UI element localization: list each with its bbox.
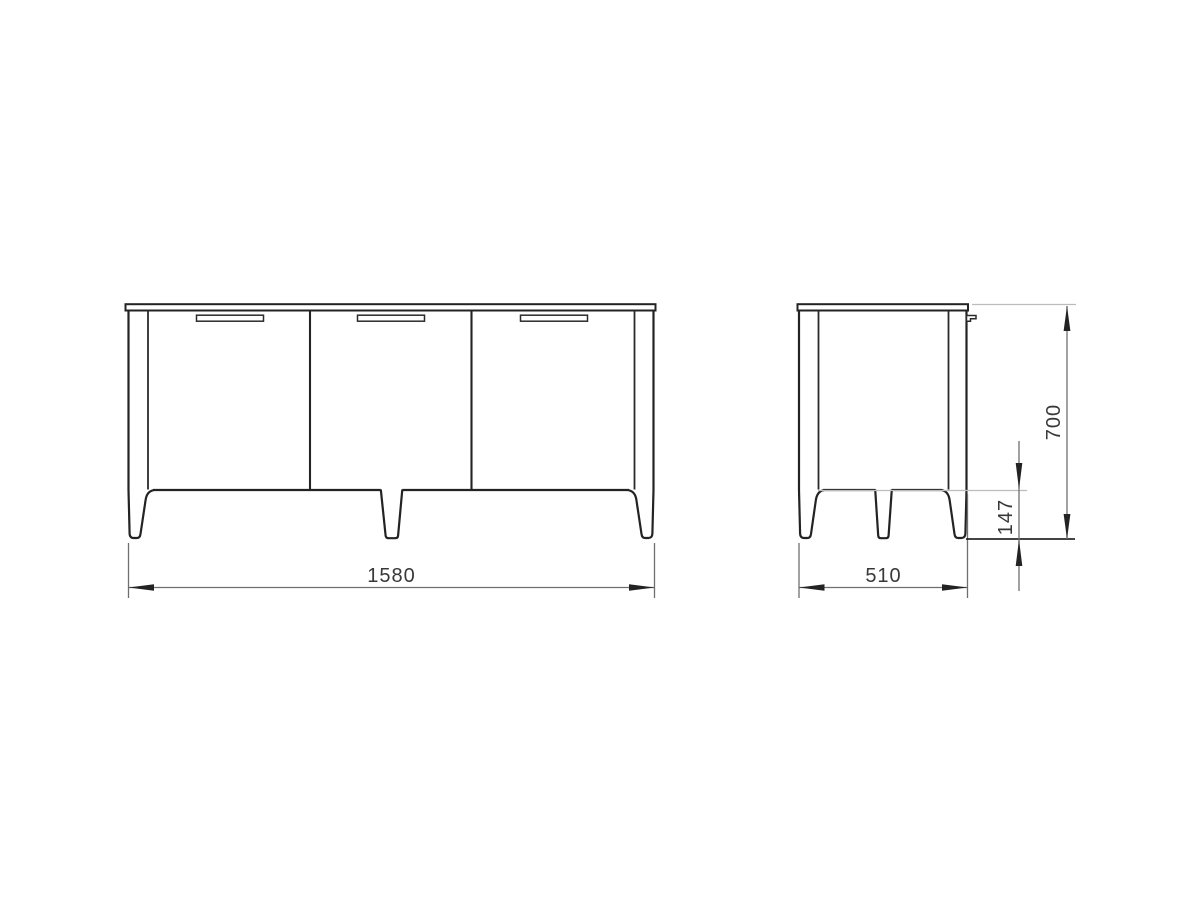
side-left-leg — [799, 490, 824, 538]
depth-arrow-right — [942, 584, 968, 591]
front-door3-handle — [521, 315, 588, 321]
leg-height-arrow-up — [1016, 540, 1023, 567]
dimension-front-width: 1580 — [129, 543, 655, 598]
dimension-depth: 510 — [799, 494, 968, 598]
front-width-arrow-right — [629, 584, 655, 591]
front-door1-handle — [197, 315, 264, 321]
front-width-arrow-left — [129, 584, 155, 591]
front-view — [126, 304, 656, 538]
front-left-leg — [129, 490, 154, 538]
side-top-panel — [798, 304, 969, 310]
technical-drawing-canvas: 1580 510 700 147 — [0, 0, 1200, 900]
leg-height-label: 147 — [995, 499, 1017, 535]
side-view — [798, 304, 977, 538]
height-arrow-bottom — [1064, 514, 1071, 539]
side-center-leg — [875, 490, 892, 539]
dimension-height: 700 — [966, 305, 1076, 540]
front-width-label: 1580 — [367, 565, 416, 587]
leg-height-arrow-down — [1016, 463, 1023, 490]
depth-label: 510 — [865, 565, 901, 587]
front-door2-handle — [358, 315, 425, 321]
depth-arrow-left — [799, 584, 825, 591]
side-right-leg — [942, 490, 967, 538]
dimension-leg-height: 147 — [818, 441, 1027, 591]
front-center-leg — [381, 490, 403, 539]
height-label: 700 — [1043, 404, 1065, 440]
height-arrow-top — [1064, 306, 1071, 331]
front-right-leg — [629, 490, 654, 538]
sideboard-drawing: 1580 510 700 147 — [0, 0, 1200, 900]
front-top-panel — [126, 304, 656, 310]
side-handle-profile — [967, 316, 977, 322]
